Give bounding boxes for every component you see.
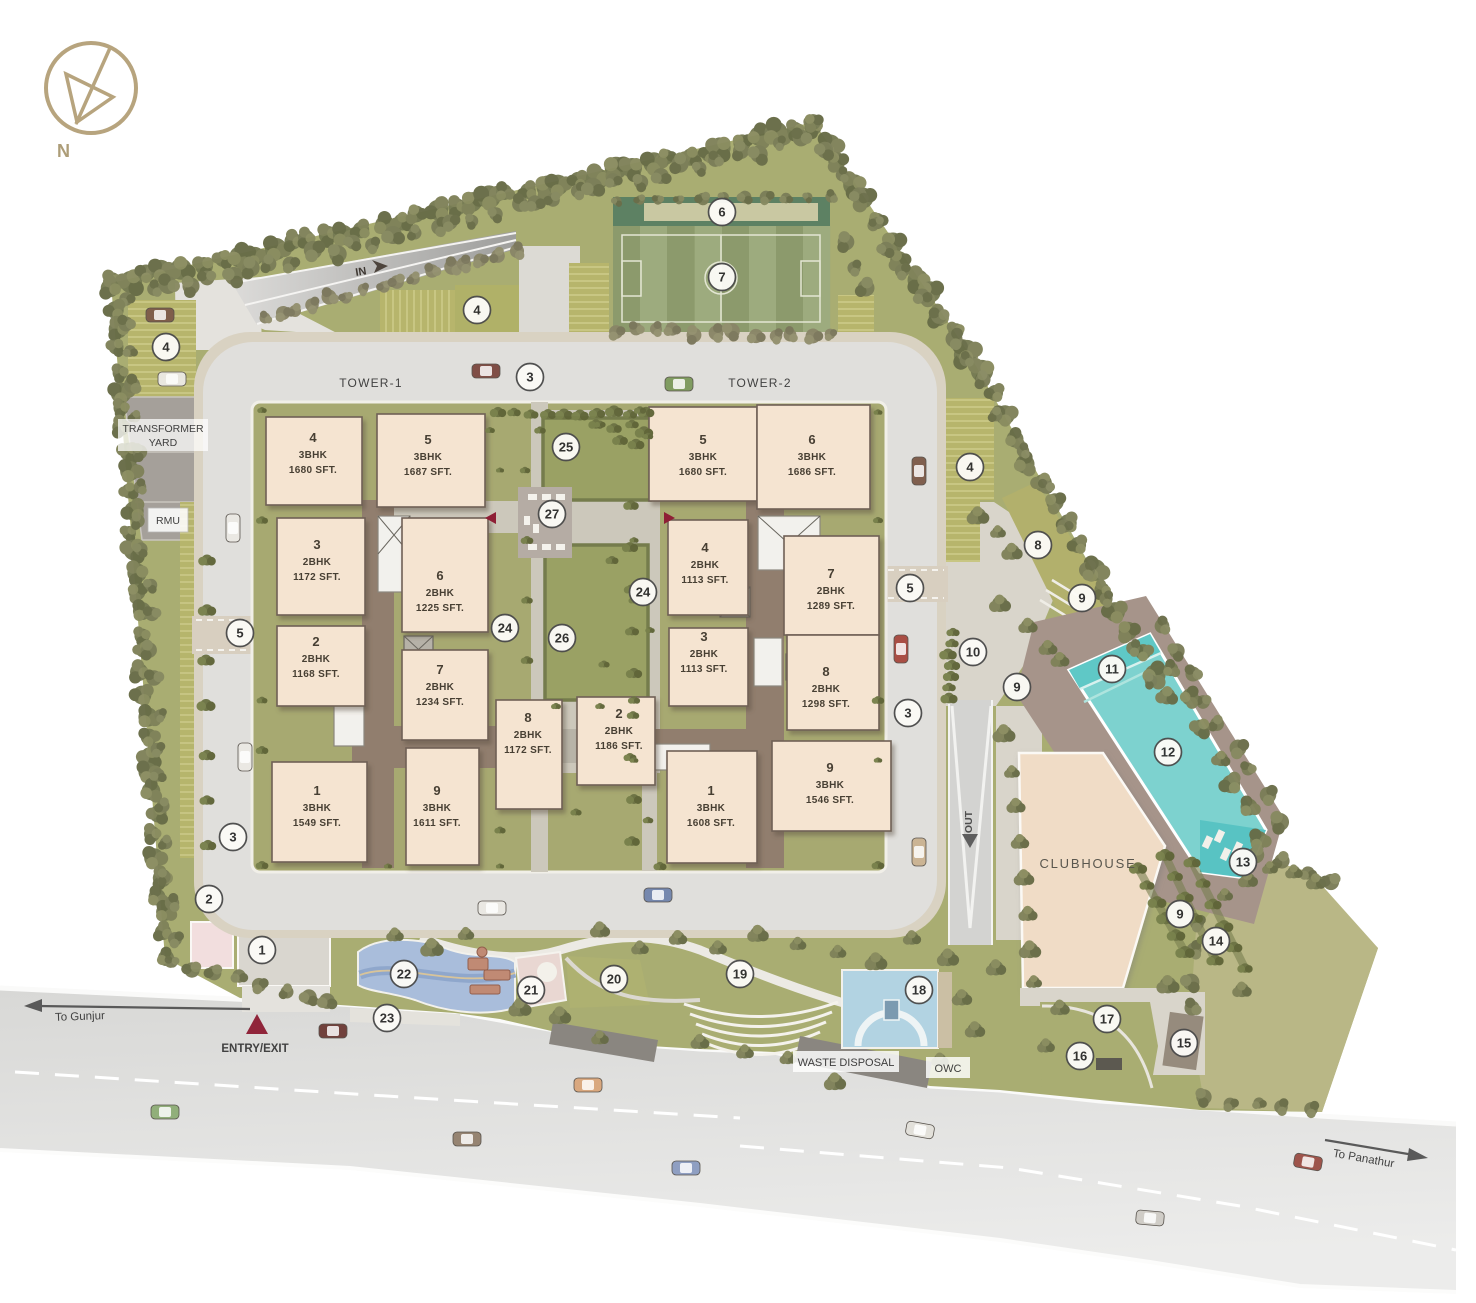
- svg-text:3BHK: 3BHK: [816, 780, 845, 791]
- svg-text:10: 10: [966, 645, 980, 660]
- svg-text:2BHK: 2BHK: [817, 586, 846, 597]
- svg-text:RMU: RMU: [156, 515, 180, 527]
- svg-text:4: 4: [162, 340, 170, 355]
- svg-text:OUT: OUT: [963, 810, 975, 833]
- svg-text:18: 18: [912, 983, 926, 998]
- svg-text:12: 12: [1161, 745, 1175, 760]
- svg-text:2BHK: 2BHK: [812, 684, 841, 695]
- svg-text:3BHK: 3BHK: [303, 803, 332, 814]
- svg-text:8: 8: [1034, 538, 1041, 553]
- svg-text:1686 SFT.: 1686 SFT.: [788, 467, 836, 478]
- svg-text:2: 2: [312, 634, 319, 649]
- svg-text:5: 5: [424, 432, 431, 447]
- svg-text:14: 14: [1209, 934, 1224, 949]
- svg-text:8: 8: [524, 710, 531, 725]
- svg-text:1172 SFT.: 1172 SFT.: [504, 745, 552, 756]
- svg-text:21: 21: [524, 983, 538, 998]
- svg-text:5: 5: [699, 432, 706, 447]
- svg-text:N: N: [57, 141, 70, 161]
- svg-text:9: 9: [1013, 680, 1020, 695]
- svg-text:TOWER-2: TOWER-2: [728, 376, 792, 390]
- svg-text:1608 SFT.: 1608 SFT.: [687, 818, 735, 829]
- svg-text:2BHK: 2BHK: [605, 726, 634, 737]
- svg-text:19: 19: [733, 967, 747, 982]
- svg-text:TOWER-1: TOWER-1: [339, 376, 403, 390]
- svg-text:2BHK: 2BHK: [303, 557, 332, 568]
- svg-text:2: 2: [205, 892, 212, 907]
- svg-text:26: 26: [555, 631, 569, 646]
- svg-text:3: 3: [904, 706, 911, 721]
- svg-text:3BHK: 3BHK: [414, 452, 443, 463]
- svg-text:1: 1: [707, 783, 714, 798]
- svg-text:1186 SFT.: 1186 SFT.: [595, 741, 643, 752]
- svg-text:7: 7: [827, 566, 834, 581]
- svg-text:1172 SFT.: 1172 SFT.: [293, 572, 341, 583]
- svg-text:7: 7: [436, 662, 443, 677]
- svg-text:3BHK: 3BHK: [798, 452, 827, 463]
- svg-text:4: 4: [701, 540, 709, 555]
- svg-text:6: 6: [718, 205, 725, 220]
- svg-text:4: 4: [966, 460, 974, 475]
- svg-text:3BHK: 3BHK: [423, 803, 452, 814]
- svg-text:2BHK: 2BHK: [691, 560, 720, 571]
- svg-text:9: 9: [1078, 591, 1085, 606]
- svg-text:CLUBHOUSE: CLUBHOUSE: [1039, 856, 1136, 871]
- svg-text:22: 22: [397, 967, 411, 982]
- svg-text:3BHK: 3BHK: [299, 450, 328, 461]
- svg-text:2BHK: 2BHK: [426, 682, 455, 693]
- svg-text:1687 SFT.: 1687 SFT.: [404, 467, 452, 478]
- svg-text:IN: IN: [355, 265, 368, 279]
- svg-text:25: 25: [559, 440, 573, 455]
- svg-text:8: 8: [822, 664, 829, 679]
- svg-text:5: 5: [906, 581, 913, 596]
- svg-text:16: 16: [1073, 1049, 1087, 1064]
- svg-text:3: 3: [700, 629, 707, 644]
- svg-text:9: 9: [1176, 907, 1183, 922]
- svg-text:1225 SFT.: 1225 SFT.: [416, 603, 464, 614]
- svg-text:20: 20: [607, 972, 621, 987]
- svg-text:1113 SFT.: 1113 SFT.: [680, 664, 727, 675]
- svg-text:1611 SFT.: 1611 SFT.: [413, 818, 461, 829]
- svg-text:WASTE DISPOSAL: WASTE DISPOSAL: [798, 1057, 895, 1069]
- svg-text:ENTRY/EXIT: ENTRY/EXIT: [221, 1043, 288, 1055]
- svg-text:5: 5: [236, 626, 243, 641]
- svg-text:TRANSFORMER: TRANSFORMER: [122, 423, 204, 435]
- svg-text:9: 9: [826, 760, 833, 775]
- svg-text:3: 3: [229, 830, 236, 845]
- svg-text:3BHK: 3BHK: [689, 452, 718, 463]
- svg-text:1298 SFT.: 1298 SFT.: [802, 699, 850, 710]
- svg-text:24: 24: [498, 621, 513, 636]
- svg-text:23: 23: [380, 1011, 394, 1026]
- svg-text:1168 SFT.: 1168 SFT.: [292, 669, 340, 680]
- svg-text:3BHK: 3BHK: [697, 803, 726, 814]
- svg-text:4: 4: [473, 303, 481, 318]
- svg-text:1234 SFT.: 1234 SFT.: [416, 697, 464, 708]
- svg-text:27: 27: [545, 507, 559, 522]
- svg-text:9: 9: [433, 783, 440, 798]
- svg-text:24: 24: [636, 585, 651, 600]
- svg-text:17: 17: [1100, 1012, 1114, 1027]
- svg-text:4: 4: [309, 430, 317, 445]
- svg-text:7: 7: [718, 270, 725, 285]
- svg-text:2: 2: [615, 706, 622, 721]
- svg-text:13: 13: [1236, 855, 1250, 870]
- svg-text:1680 SFT.: 1680 SFT.: [679, 467, 727, 478]
- svg-text:To Gunjur: To Gunjur: [55, 1010, 105, 1024]
- svg-text:3: 3: [526, 370, 533, 385]
- svg-text:2BHK: 2BHK: [514, 730, 543, 741]
- svg-text:2BHK: 2BHK: [690, 649, 719, 660]
- svg-text:OWC: OWC: [935, 1063, 962, 1075]
- svg-text:3: 3: [313, 537, 320, 552]
- svg-text:1: 1: [258, 943, 265, 958]
- svg-text:1546 SFT.: 1546 SFT.: [806, 795, 854, 806]
- svg-text:1113 SFT.: 1113 SFT.: [681, 575, 728, 586]
- svg-text:6: 6: [436, 568, 443, 583]
- svg-text:2BHK: 2BHK: [426, 588, 455, 599]
- svg-text:1289 SFT.: 1289 SFT.: [807, 601, 855, 612]
- svg-text:2BHK: 2BHK: [302, 654, 331, 665]
- svg-text:6: 6: [808, 432, 815, 447]
- svg-text:11: 11: [1105, 662, 1119, 677]
- svg-text:1: 1: [313, 783, 320, 798]
- svg-text:15: 15: [1177, 1036, 1191, 1051]
- svg-text:YARD: YARD: [149, 437, 178, 449]
- svg-text:1549 SFT.: 1549 SFT.: [293, 818, 341, 829]
- svg-text:1680 SFT.: 1680 SFT.: [289, 465, 337, 476]
